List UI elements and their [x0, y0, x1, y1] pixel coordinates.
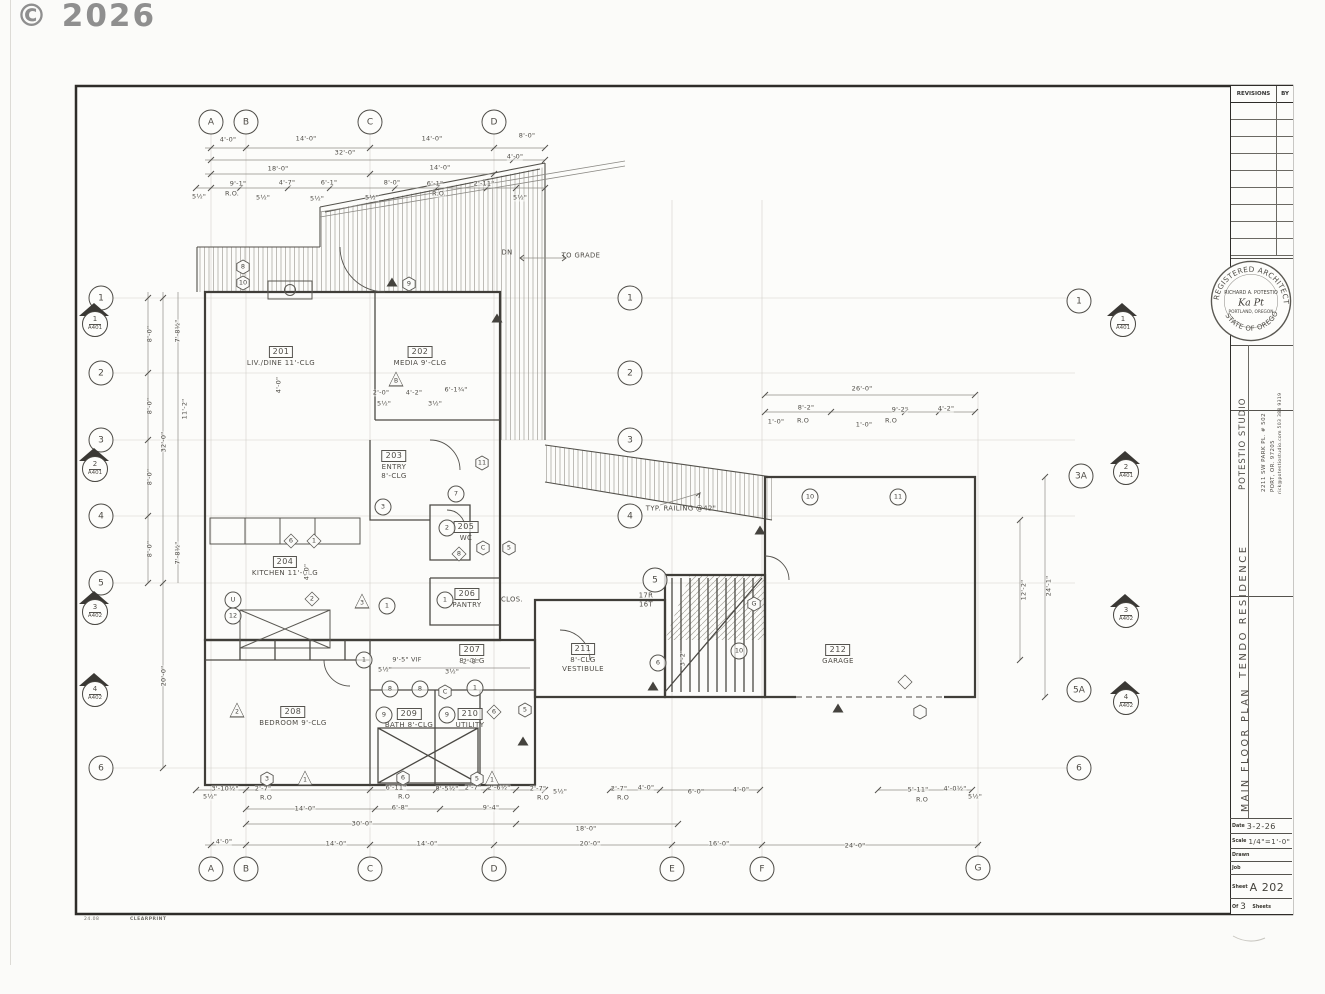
- sheet-number: A 202: [1250, 881, 1285, 894]
- title-block-fields: Date 3-2-26 Scale 1/4"=1'-0" Drawn Job S…: [1230, 86, 1292, 914]
- scanned-drawing-page: © 2026: [0, 0, 1325, 994]
- drawn-field: Drawn: [1230, 848, 1292, 862]
- date-value: 3-2-26: [1247, 822, 1276, 831]
- scale-value: 1/4"=1'-0": [1248, 838, 1290, 846]
- floor-plan-linework: [0, 0, 1325, 994]
- print-code: 24.08: [84, 917, 99, 922]
- job-field: Job: [1230, 861, 1292, 875]
- sheet-count-field: Of 3 Sheets: [1230, 898, 1292, 915]
- date-field: Date 3-2-26: [1230, 818, 1292, 834]
- paper-brand: CLEARPRINT: [130, 917, 166, 922]
- scan-artifact: [1233, 936, 1265, 941]
- sheets-count: 3: [1240, 902, 1246, 912]
- sheet-field: Sheet A 202: [1230, 874, 1292, 899]
- scale-field: Scale 1/4"=1'-0": [1230, 833, 1292, 849]
